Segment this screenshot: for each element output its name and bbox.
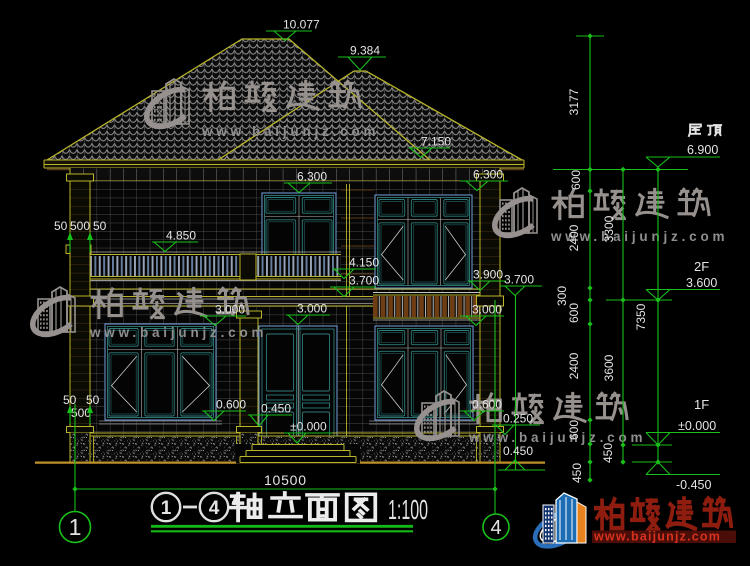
svg-text:6.300: 6.300 xyxy=(473,168,503,182)
svg-text:0.600: 0.600 xyxy=(472,398,502,412)
svg-text:1:100: 1:100 xyxy=(388,494,428,525)
svg-text:10500: 10500 xyxy=(264,472,306,488)
svg-text:4.850: 4.850 xyxy=(166,229,196,243)
svg-text:www.baijunjz.com: www.baijunjz.com xyxy=(201,124,379,139)
svg-text:9.384: 9.384 xyxy=(350,44,380,58)
svg-text:www.baijunjz.com: www.baijunjz.com xyxy=(89,325,267,340)
svg-text:1: 1 xyxy=(161,498,172,519)
svg-text:3.700: 3.700 xyxy=(504,273,534,287)
svg-text:±0.000: ±0.000 xyxy=(290,420,327,434)
svg-text:1F: 1F xyxy=(694,397,709,412)
svg-text:0.450: 0.450 xyxy=(261,402,291,416)
svg-text:3.000: 3.000 xyxy=(472,303,502,317)
svg-text:3600: 3600 xyxy=(602,354,616,381)
svg-text:4.150: 4.150 xyxy=(349,256,379,270)
svg-text:300: 300 xyxy=(555,286,569,306)
svg-text:600: 600 xyxy=(567,303,581,323)
svg-text:2400: 2400 xyxy=(567,352,581,379)
svg-text:6.300: 6.300 xyxy=(297,170,327,184)
svg-text:3.700: 3.700 xyxy=(349,274,379,288)
svg-text:600: 600 xyxy=(567,420,581,440)
svg-text:3177: 3177 xyxy=(567,88,581,115)
svg-text:0.450: 0.450 xyxy=(503,444,533,458)
svg-text:450: 450 xyxy=(570,463,584,483)
svg-text:3.600: 3.600 xyxy=(686,276,717,290)
svg-text:3.900: 3.900 xyxy=(473,268,503,282)
svg-text:50: 50 xyxy=(86,393,100,407)
svg-text:50: 50 xyxy=(93,219,107,233)
svg-text:0.250: 0.250 xyxy=(503,412,533,426)
svg-text:6.900: 6.900 xyxy=(687,143,718,157)
svg-text:500: 500 xyxy=(70,219,90,233)
svg-text:7.150: 7.150 xyxy=(421,135,451,149)
svg-text:www.baijunjz.com: www.baijunjz.com xyxy=(593,530,721,544)
svg-text:10.077: 10.077 xyxy=(283,18,320,32)
svg-text:7350: 7350 xyxy=(634,303,648,330)
svg-text:450: 450 xyxy=(601,443,615,463)
svg-text:4: 4 xyxy=(490,517,501,539)
svg-text:0.600: 0.600 xyxy=(216,398,246,412)
svg-text:-0.450: -0.450 xyxy=(676,478,711,492)
svg-text:3.000: 3.000 xyxy=(297,302,327,316)
svg-text:2F: 2F xyxy=(694,259,709,274)
svg-text:600: 600 xyxy=(569,170,583,190)
svg-text:1: 1 xyxy=(69,514,82,540)
svg-text:2400: 2400 xyxy=(567,224,581,251)
svg-text:3.000: 3.000 xyxy=(215,303,245,317)
svg-text:50: 50 xyxy=(54,219,68,233)
svg-text:±0.000: ±0.000 xyxy=(678,419,716,433)
svg-text:3300: 3300 xyxy=(602,215,616,242)
svg-text:4: 4 xyxy=(209,498,220,519)
